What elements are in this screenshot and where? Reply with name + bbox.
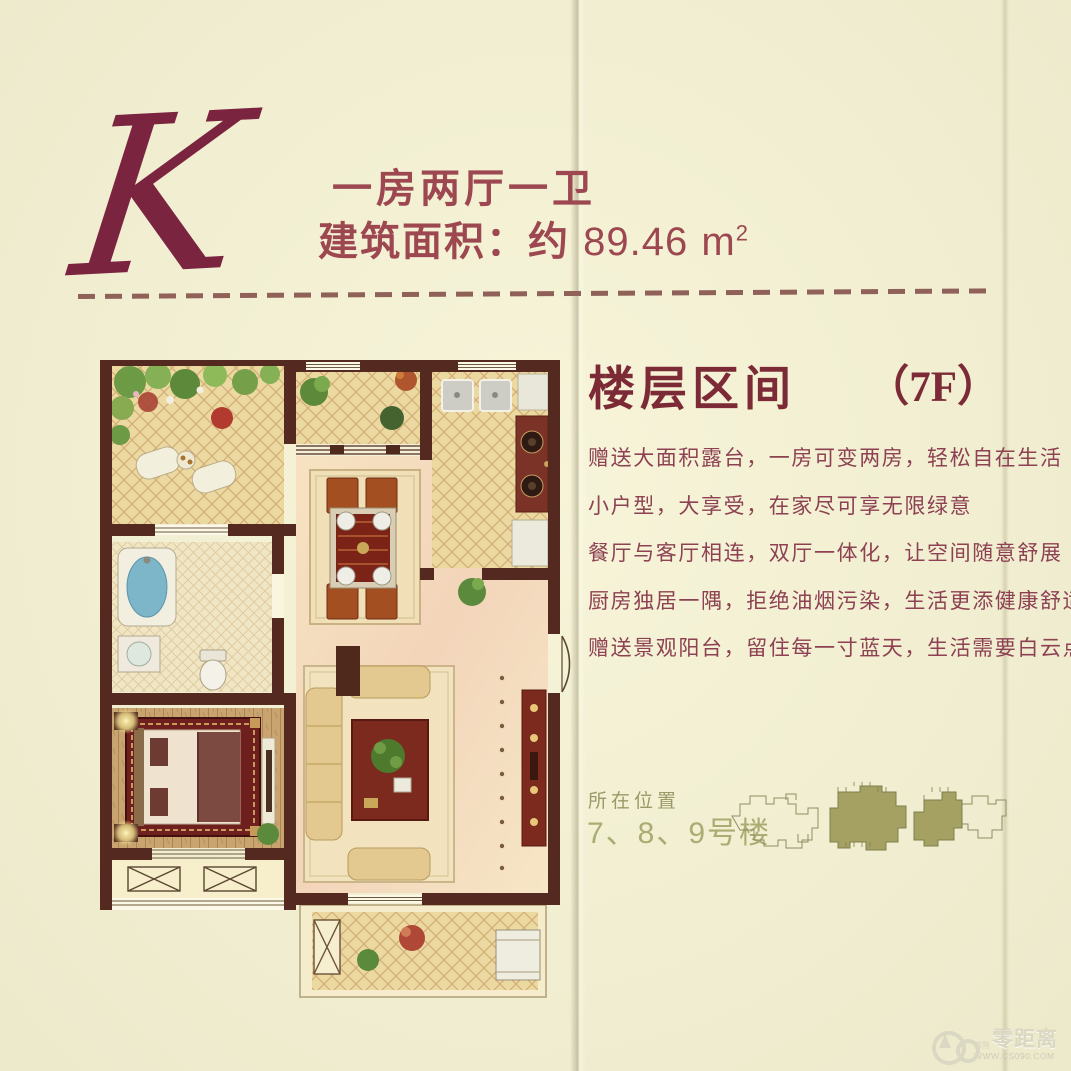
site-building-outline-right — [956, 796, 1006, 838]
watermark-url: WWW.CS090.COM — [974, 1052, 1058, 1061]
hall-door-leaf — [336, 646, 360, 696]
site-building-detail — [786, 794, 808, 842]
watermark-logo-icon — [930, 1025, 974, 1065]
toilet — [200, 650, 226, 690]
bedroom-plant — [257, 823, 279, 845]
feature-line: 餐厅与客厅相连，双厅一体化，让空间随意舒展 — [588, 537, 1018, 585]
bathtub — [118, 548, 176, 626]
dining-table — [330, 508, 396, 588]
area-title: 建筑面积：约 89.46 m2 — [318, 209, 749, 267]
kitchen-appliance — [512, 520, 548, 566]
bedroom — [112, 708, 284, 848]
site-plan-drawing — [718, 782, 1010, 854]
floor-range-heading: 楼层区间 — [588, 350, 796, 419]
balcony-plant — [357, 949, 379, 971]
dining-area — [310, 470, 420, 624]
floor-badge: （7F） — [866, 350, 1000, 414]
area-value: 89.46 — [583, 220, 688, 264]
feature-list: 赠送大面积露台，一房可变两房，轻松自在生活 小户型，大享受，在家尽可享无限绿意 … — [588, 442, 1018, 680]
site-building-highlight-mid2 — [914, 792, 962, 846]
site-plan — [718, 782, 1010, 859]
layout-title: 一房两厅一卫 — [332, 156, 596, 214]
terrace — [110, 363, 284, 524]
feature-line: 厨房独居一隅，拒绝油烟污染，生活更添健康舒适 — [588, 585, 1018, 633]
top-balcony — [296, 366, 420, 456]
site-building-outline-left — [732, 796, 818, 848]
coffee-table — [352, 720, 428, 820]
balcony-railing — [296, 444, 420, 456]
washing-machine — [496, 930, 540, 980]
entry-door — [562, 636, 570, 692]
area-label: 建筑面积：约 — [318, 220, 570, 264]
balcony-flower-highlight — [401, 927, 411, 937]
floor-plan-drawing — [100, 360, 620, 1010]
bed — [134, 728, 240, 826]
unit-type-letter: K — [64, 84, 255, 310]
washbasin — [118, 636, 160, 672]
tv-cabinet — [522, 690, 546, 846]
floor-range-row: 楼层区间 （7F） — [588, 350, 1000, 419]
stove — [516, 416, 550, 512]
feature-line: 赠送景观阳台，留住每一寸蓝天，生活需要白云点缀 — [588, 632, 1018, 680]
site-building-highlight-mid — [830, 786, 906, 850]
area-unit: m2 — [701, 220, 749, 264]
kitchen — [432, 372, 550, 568]
feature-line: 赠送大面积露台，一房可变两房，轻松自在生活 — [588, 442, 1018, 490]
floor-plan — [100, 360, 620, 1015]
bottom-balcony — [300, 905, 546, 997]
feature-line: 小户型，大享受，在家尽可享无限绿意 — [588, 490, 1018, 538]
watermark: 常熟 零距离 WWW.CS090.COM — [930, 1022, 1066, 1068]
bedroom-tv-console — [262, 738, 275, 824]
watermark-brand: 零距离 — [992, 1029, 1058, 1050]
bathroom — [112, 542, 272, 692]
